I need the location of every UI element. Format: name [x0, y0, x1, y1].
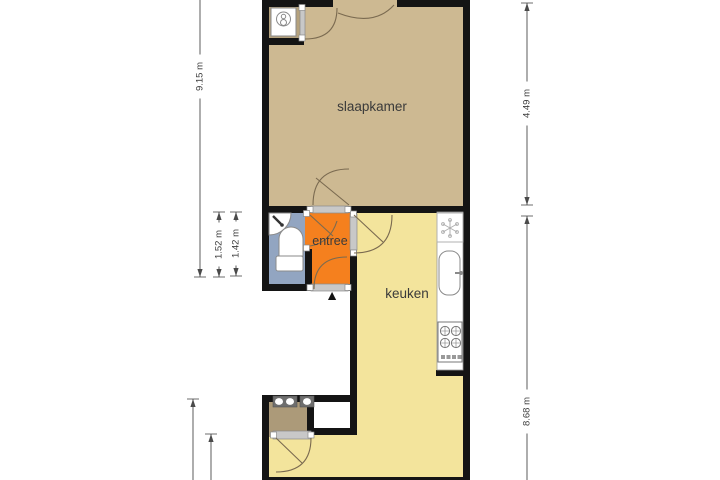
boiler-icon: [271, 8, 296, 36]
wall: [262, 38, 304, 45]
threshold: [273, 431, 311, 439]
wall: [262, 395, 269, 480]
dimension-label-left-inner-1: 1.52 m: [213, 223, 226, 267]
toilet-icon: [276, 227, 303, 271]
threshold: [311, 206, 348, 213]
door-opening: [333, 0, 397, 7]
floor-plan-drawing: [0, 0, 720, 480]
wall: [463, 0, 470, 480]
wall: [262, 284, 312, 291]
dimension-label-left-total: 9.15 m: [194, 55, 207, 99]
entrance-arrow-icon: ▲: [323, 288, 341, 302]
threshold: [350, 214, 357, 250]
washbasin-icon: [273, 396, 314, 407]
floor-plan: slaapkamer entree keuken 9.15 m 1.52 m 1…: [0, 0, 720, 480]
wall: [307, 428, 357, 435]
wall: [436, 370, 463, 376]
door-opening: [305, 213, 312, 249]
door-leaf: [300, 7, 305, 37]
dimension-label-right-bottom: 8.68 m: [521, 390, 534, 434]
dimension-label-left-inner-2: 1.42 m: [230, 222, 243, 266]
stove-icon: [438, 322, 462, 362]
kitchen-sink-icon: [439, 251, 463, 295]
dimension-label-right-top: 4.49 m: [521, 82, 534, 126]
